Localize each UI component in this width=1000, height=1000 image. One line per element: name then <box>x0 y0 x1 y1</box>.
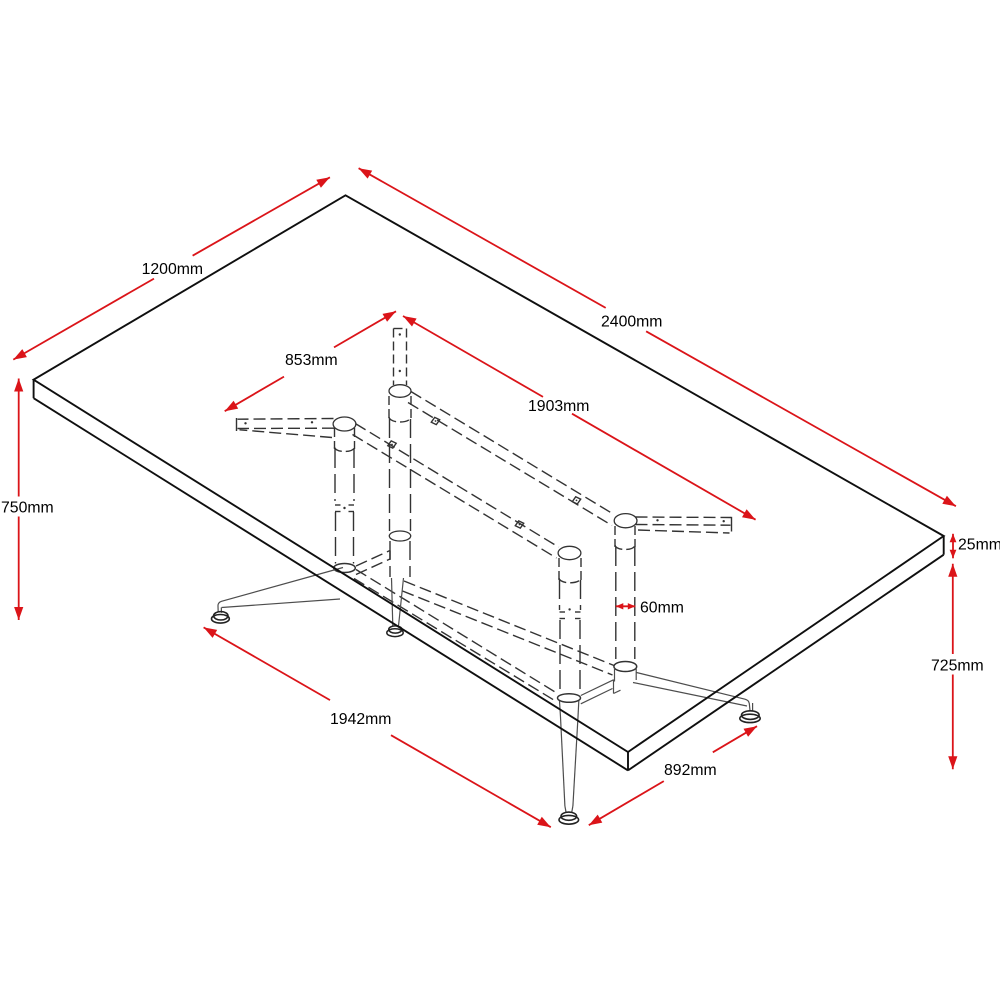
svg-text:2400mm: 2400mm <box>601 314 662 331</box>
svg-text:60mm: 60mm <box>640 600 684 617</box>
svg-text:853mm: 853mm <box>285 352 338 369</box>
svg-text:725mm: 725mm <box>931 658 984 675</box>
svg-text:1903mm: 1903mm <box>528 398 589 415</box>
svg-text:1942mm: 1942mm <box>330 711 391 728</box>
svg-text:750mm: 750mm <box>1 500 54 517</box>
svg-text:1200mm: 1200mm <box>142 261 203 278</box>
svg-text:25mm: 25mm <box>958 536 1000 553</box>
svg-text:892mm: 892mm <box>664 762 717 779</box>
